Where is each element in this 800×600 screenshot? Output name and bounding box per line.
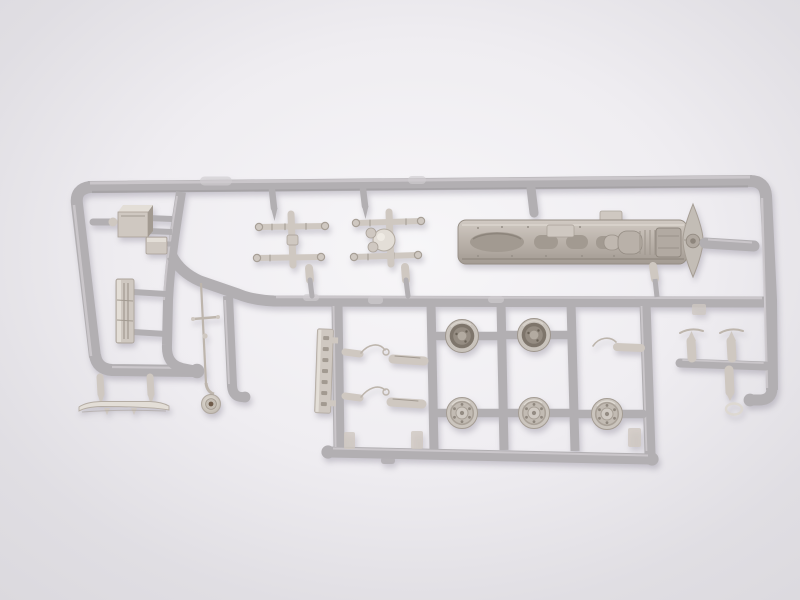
wheel-face-3: [592, 399, 623, 430]
sprue-photo-svg: [0, 0, 800, 600]
wheel-face-2: [519, 398, 550, 429]
photo-stage: Unpainted light-gray injection-molded pl…: [0, 0, 800, 600]
sprue-photo: Unpainted light-gray injection-molded pl…: [0, 0, 800, 600]
wheel-hub-back-1: [446, 320, 479, 353]
wheel-hub-back-2: [518, 319, 551, 352]
wheel-face-1: [447, 398, 478, 429]
